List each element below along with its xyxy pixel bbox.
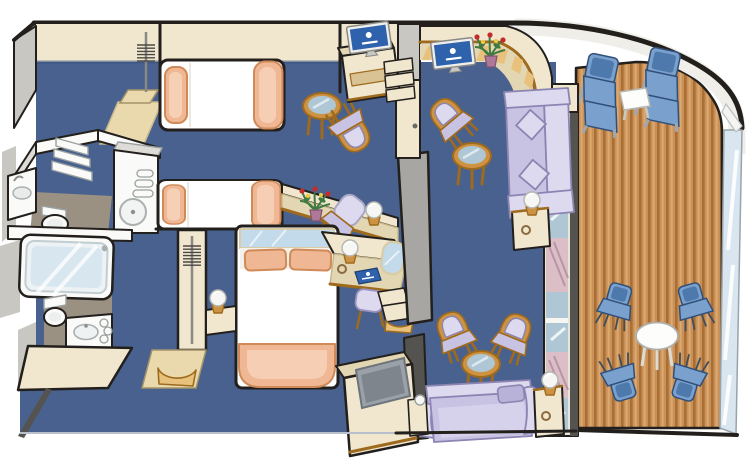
double-bed [236,226,338,388]
toilet-tub-bath [44,295,66,326]
pillow [290,249,332,270]
rolled-towel [100,319,108,327]
door-handle-icon [413,124,418,129]
towel [137,170,153,177]
coat-hangers-icon [183,246,201,265]
mirror-headboard [240,229,334,248]
towel [133,190,153,197]
sofa-pillow [497,385,525,404]
rolled-towel [100,335,108,343]
pillow [245,249,287,270]
suite-floorplan-illustration: Cruise ship two-bedroom family suite flo… [0,0,750,460]
washbasin-counter [8,168,36,220]
vanity-counter [322,232,406,292]
bottom-edge-dark [396,431,576,433]
towel [135,180,153,187]
twin-bed-lower [158,180,282,229]
side-table-lower-left [408,395,428,436]
vanity-cabinet [114,142,162,233]
rolled-towel [104,327,112,335]
mini-lamp [415,395,425,405]
floorplan-stage: Cruise ship two-bedroom family suite flo… [0,0,750,460]
bathtub [19,234,114,299]
window-wall-edge [570,108,578,436]
shelf-stack [384,58,415,102]
twin-bed-upper [160,60,284,130]
balcony-round-table [636,323,678,371]
